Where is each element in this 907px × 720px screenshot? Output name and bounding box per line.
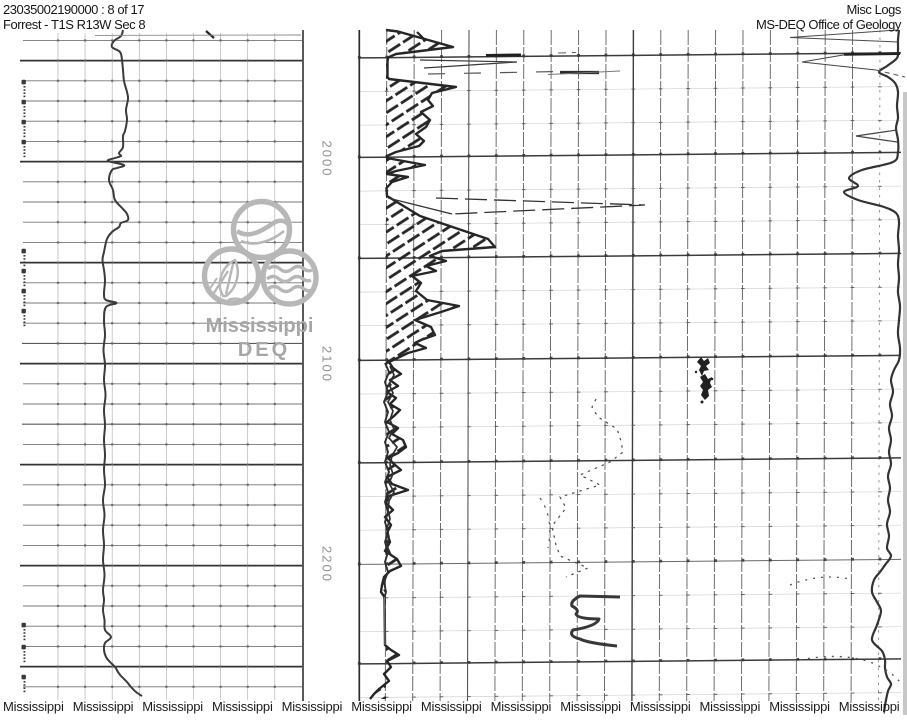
svg-text:Mississippi: Mississippi <box>351 699 412 714</box>
svg-text:Mississippi: Mississippi <box>769 699 830 714</box>
svg-text:Mississippi: Mississippi <box>421 699 482 714</box>
svg-text:2000: 2000 <box>320 141 335 178</box>
svg-text:Mississippi: Mississippi <box>700 699 761 714</box>
svg-text:Mississippi: Mississippi <box>839 699 900 714</box>
svg-text:Mississippi: Mississippi <box>3 699 64 714</box>
svg-text:Mississippi: Mississippi <box>630 699 691 714</box>
svg-text:Mississippi: Mississippi <box>212 699 273 714</box>
svg-text:2200: 2200 <box>320 546 335 583</box>
svg-text:Mississippi: Mississippi <box>560 699 621 714</box>
svg-text:Forrest - T1S R13W Sec 8: Forrest - T1S R13W Sec 8 <box>3 17 145 32</box>
svg-text:Mississippi: Mississippi <box>142 699 203 714</box>
svg-text:Mississippi: Mississippi <box>491 699 552 714</box>
svg-text:23035002190000 : 8 of 17: 23035002190000 : 8 of 17 <box>3 2 144 17</box>
svg-text:Mississippi: Mississippi <box>282 699 343 714</box>
svg-text:Mississippi: Mississippi <box>206 315 314 337</box>
svg-text:Misc Logs: Misc Logs <box>847 2 902 17</box>
svg-text:Mississippi: Mississippi <box>73 699 134 714</box>
svg-text:MS-DEQ Office of Geology: MS-DEQ Office of Geology <box>756 17 902 32</box>
svg-text:DEQ: DEQ <box>238 339 290 361</box>
svg-text:2100: 2100 <box>320 346 335 383</box>
